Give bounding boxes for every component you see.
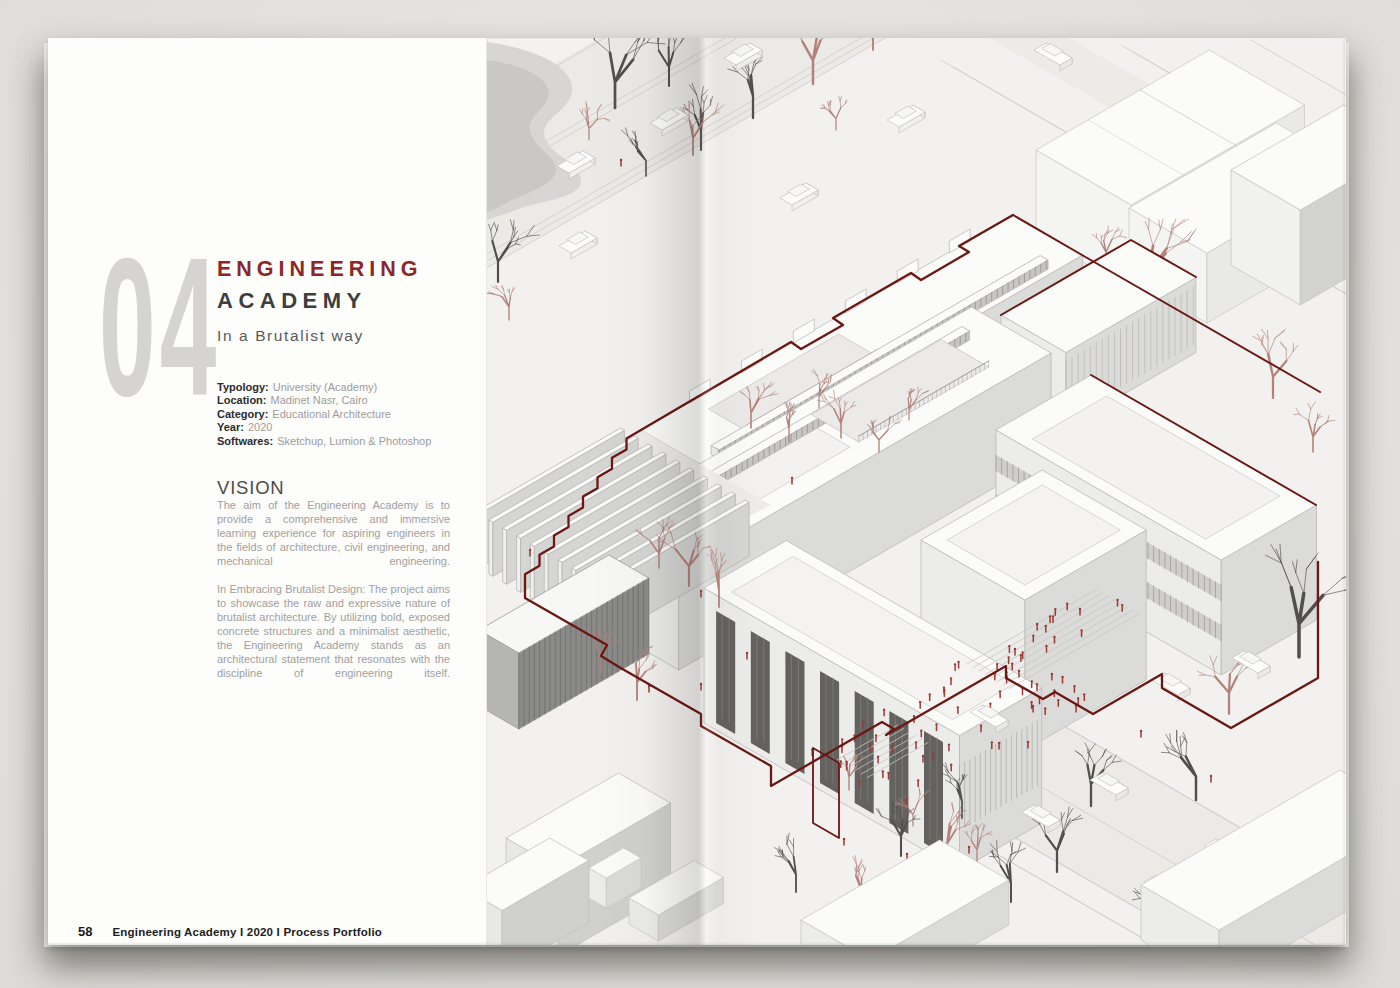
portfolio-spread: 04 ENGINEERING ACADEMY In a Brutalist wa… bbox=[48, 38, 1345, 945]
page-number: 58 bbox=[78, 924, 92, 939]
isometric-drawing bbox=[487, 38, 1346, 945]
vision-heading: VISION bbox=[217, 479, 285, 498]
meta-row-category: Category:Educational Architecture bbox=[217, 408, 477, 421]
project-title-line1: ENGINEERING bbox=[217, 259, 423, 281]
chapter-number: 04 bbox=[99, 230, 221, 426]
meta-row-typology: Typology:University (Academy) bbox=[217, 381, 477, 394]
site-isometric-illustration bbox=[486, 38, 1346, 945]
meta-row-year: Year:2020 bbox=[217, 421, 477, 434]
footer-text: Engineering Academy I 2020 I Process Por… bbox=[112, 926, 382, 938]
vision-paragraph-1: The aim of the Engineering Academy is to… bbox=[217, 498, 450, 568]
project-metadata: Typology:University (Academy) Location:M… bbox=[217, 381, 477, 448]
meta-row-softwares: Softwares:Sketchup, Lumion & Photoshop bbox=[217, 435, 477, 448]
vision-paragraph-2: In Embracing Brutalist Design: The proje… bbox=[217, 582, 450, 680]
meta-row-location: Location:Madinet Nasr, Cairo bbox=[217, 394, 477, 407]
project-title-line2: ACADEMY bbox=[217, 290, 367, 312]
page-footer: 58 Engineering Academy I 2020 I Process … bbox=[78, 924, 382, 939]
project-subtitle: In a Brutalist way bbox=[217, 328, 364, 344]
